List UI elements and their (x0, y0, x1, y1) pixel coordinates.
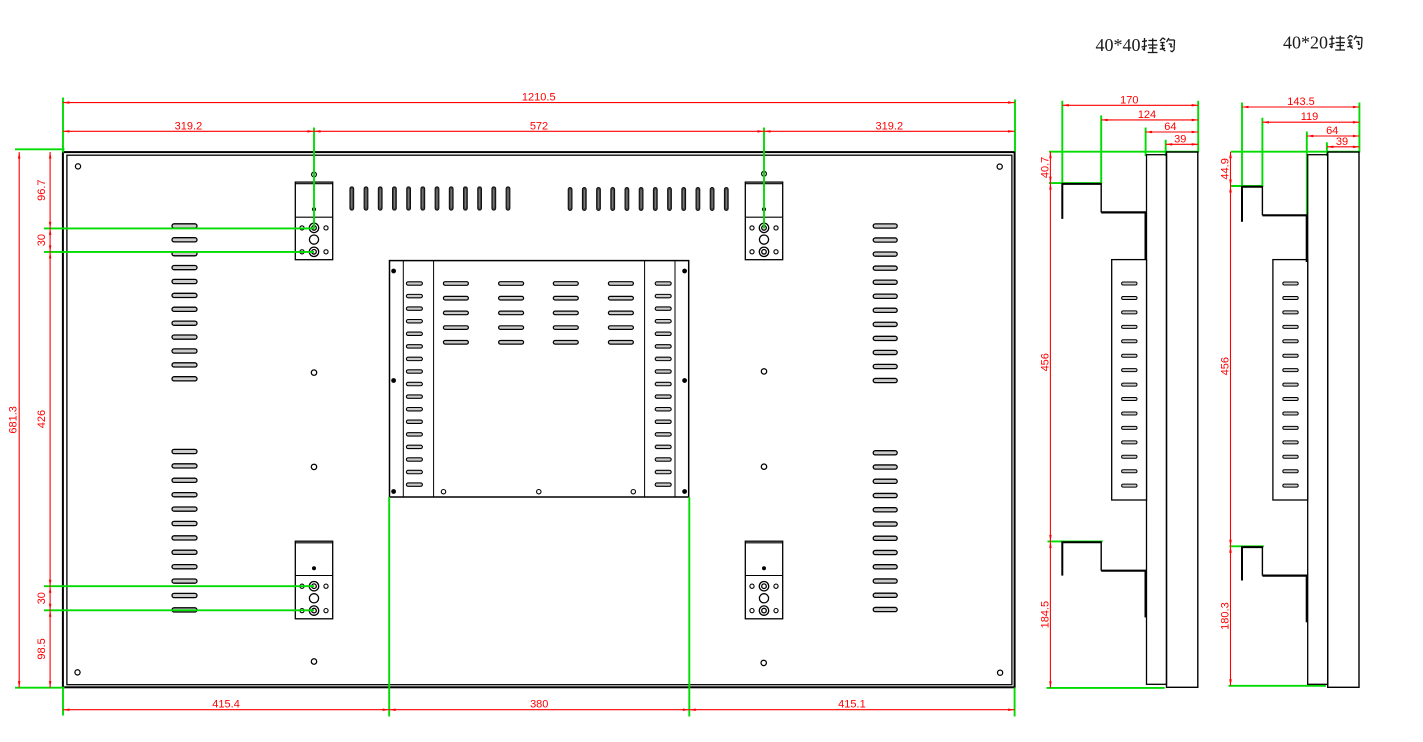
svg-text:415.1: 415.1 (838, 699, 866, 711)
svg-text:572: 572 (530, 120, 548, 132)
svg-text:681.3: 681.3 (8, 406, 20, 434)
svg-text:143.5: 143.5 (1287, 96, 1315, 108)
svg-text:426: 426 (36, 410, 48, 428)
svg-text:39: 39 (1174, 133, 1186, 145)
svg-text:30: 30 (36, 592, 48, 604)
svg-text:30: 30 (36, 234, 48, 246)
svg-text:40*40: 40*40 (1096, 35, 1141, 55)
svg-text:380: 380 (530, 699, 548, 711)
svg-text:44.9: 44.9 (1220, 158, 1232, 179)
svg-text:96.7: 96.7 (36, 179, 48, 200)
svg-text:180.3: 180.3 (1220, 602, 1232, 630)
svg-text:319.2: 319.2 (175, 120, 203, 132)
svg-text:124: 124 (1138, 109, 1156, 121)
svg-text:64: 64 (1164, 121, 1176, 133)
svg-text:39: 39 (1336, 136, 1348, 148)
svg-text:40*20: 40*20 (1283, 33, 1328, 53)
svg-text:456: 456 (1039, 353, 1051, 371)
svg-text:1210.5: 1210.5 (522, 92, 556, 104)
svg-text:170: 170 (1120, 94, 1138, 106)
svg-text:98.5: 98.5 (36, 638, 48, 659)
svg-text:319.2: 319.2 (876, 120, 904, 132)
svg-text:184.5: 184.5 (1039, 601, 1051, 629)
svg-text:119: 119 (1301, 111, 1319, 123)
svg-text:40.7: 40.7 (1039, 157, 1051, 178)
svg-text:415.4: 415.4 (212, 699, 240, 711)
svg-text:456: 456 (1220, 357, 1232, 375)
